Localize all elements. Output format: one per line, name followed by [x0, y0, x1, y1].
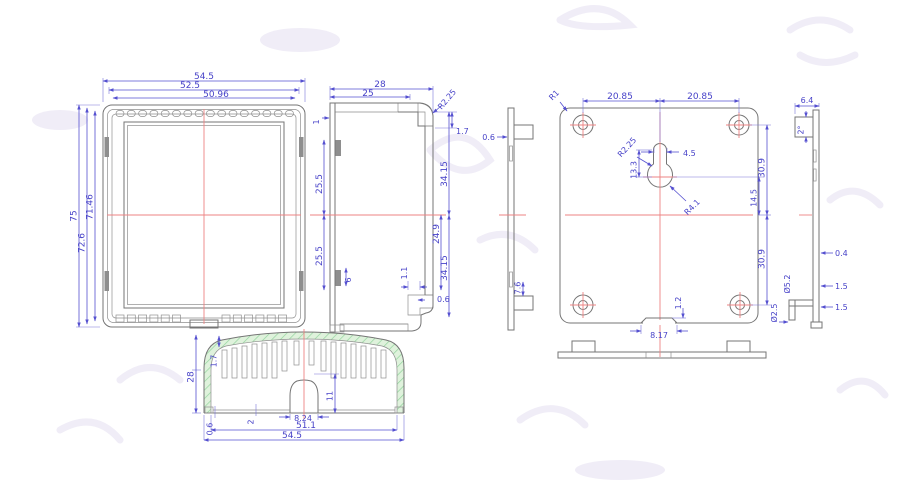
dim-profile-6-4: 6.4 [801, 96, 814, 105]
dim-plate-8-17: 8.17 [650, 331, 668, 340]
dim-plate-r2-25: R2.25 [616, 136, 638, 159]
dim-bottom-11: 11 [326, 391, 335, 401]
dim-plate-14-5: 14.5 [750, 189, 759, 207]
dim-profile-1-5b: 1.5 [835, 303, 848, 312]
dim-bottom-28: 28 [187, 371, 197, 383]
dim-plate-30-9a: 30.9 [758, 158, 768, 178]
plate-bottom-strip-view [558, 325, 766, 358]
dim-side-6: 6 [344, 277, 353, 282]
dim-plate-4-5: 4.5 [683, 149, 696, 158]
front-view: 54.5 52.5 50.96 75 72.6 71.46 [70, 72, 306, 328]
side-section-view: 28 25 R2.25 1.7 34.15 24.9 34.15 1.1 0.6… [310, 80, 469, 332]
dim-plate-20-85a: 20.85 [607, 92, 633, 102]
dim-bottom-54-5: 54.5 [282, 431, 302, 441]
dim-bottom-1-7: 1.7 [210, 355, 219, 368]
dim-side-28: 28 [374, 80, 386, 90]
dim-side-25: 25 [362, 89, 373, 99]
cad-drawing: 54.5 52.5 50.96 75 72.6 71.46 [0, 0, 900, 500]
front-top-vents [116, 111, 294, 117]
dim-plate-30-9b: 30.9 [758, 249, 768, 269]
watermark-decoration [32, 9, 885, 480]
dim-side-1-7: 1.7 [456, 127, 469, 136]
dim-front-71-46: 71.46 [86, 194, 96, 220]
back-plate-view: 20.85 20.85 R1 R2.25 4.5 13.3 R4.1 30.9 … [547, 88, 771, 358]
dim-profile-2deg: 2° [797, 125, 806, 134]
dim-side-34-15-top: 34.15 [440, 161, 450, 187]
dim-plate-r1: R1 [547, 88, 561, 102]
dim-front-75: 75 [70, 210, 80, 221]
cad-drawing-canvas: 54.5 52.5 50.96 75 72.6 71.46 [0, 0, 900, 500]
dim-plate-1-2: 1.2 [674, 297, 683, 310]
dim-bottom-0-6: 0.6 [206, 423, 215, 436]
plate-dimensions: 20.85 20.85 R1 R2.25 4.5 13.3 R4.1 30.9 … [547, 88, 771, 340]
dim-plate-13-3: 13.3 [630, 161, 639, 179]
dim-front-52-5: 52.5 [180, 81, 200, 91]
dim-side-r2-25: R2.25 [436, 88, 458, 112]
dim-side-25-5a: 25.5 [315, 174, 325, 194]
bottom-dimensions: 28 1.7 11 8.24 2 0.6 51.1 54.5 [187, 335, 405, 441]
dim-strip-0-6: 0.6 [482, 133, 495, 142]
dim-side-0-6: 0.6 [437, 295, 450, 304]
dim-front-50-96: 50.96 [203, 90, 229, 100]
bottom-section-view: 28 1.7 11 8.24 2 0.6 51.1 54.5 [187, 329, 405, 441]
dim-profile-1-5a: 1.5 [835, 282, 848, 291]
profile-dimensions: 6.4 2° 0.4 1.5 1.5 Ø5.2 Ø2.5 [769, 96, 848, 323]
dim-side-24-9: 24.9 [432, 224, 442, 244]
dim-side-25-5b: 25.5 [315, 246, 325, 266]
dim-side-1: 1 [312, 119, 321, 124]
dim-profile-0-4: 0.4 [835, 249, 848, 258]
dim-strip-7-6: 7.6 [514, 282, 523, 295]
dim-front-72-6: 72.6 [78, 233, 88, 253]
dim-bottom-51-1: 51.1 [296, 421, 316, 431]
dim-profile-d2-5: Ø2.5 [769, 303, 779, 322]
dim-side-34-15-bot: 34.15 [440, 255, 450, 281]
plate-side-view: 0.6 7.6 [482, 108, 533, 330]
dim-bottom-2: 2 [247, 419, 256, 424]
dim-side-1-1: 1.1 [400, 267, 409, 280]
dim-plate-20-85b: 20.85 [687, 92, 713, 102]
dim-profile-d5-2: Ø5.2 [782, 274, 792, 293]
front-bottom-vents [116, 315, 287, 328]
plate-profile-section: 6.4 2° 0.4 1.5 1.5 Ø5.2 Ø2.5 [769, 96, 848, 328]
